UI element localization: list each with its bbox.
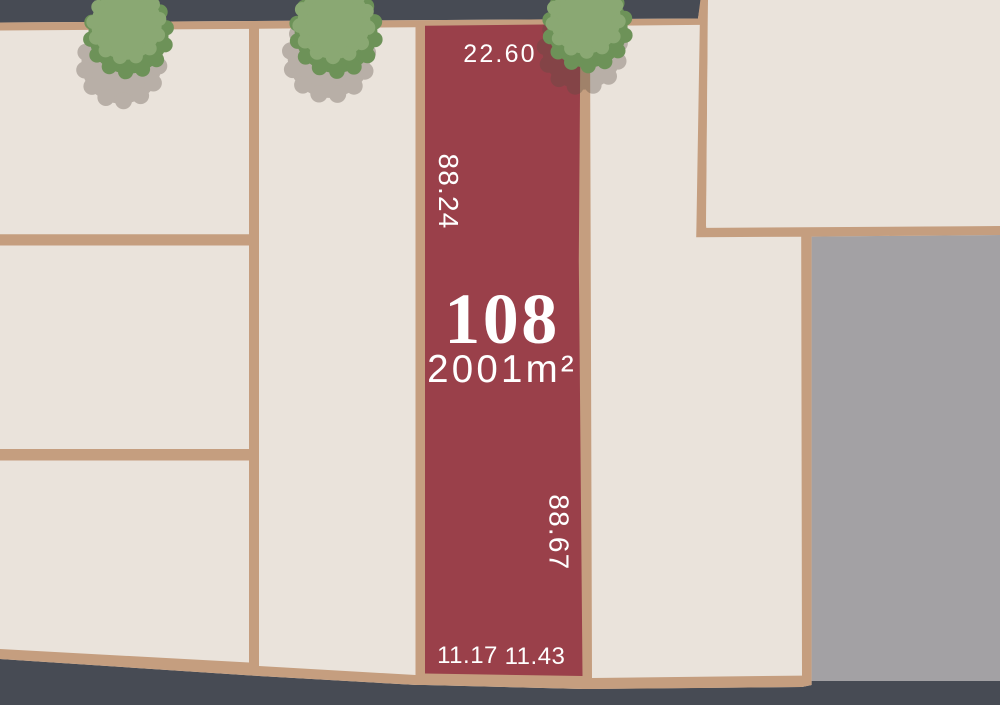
svg-text:2001m²: 2001m²	[427, 348, 577, 391]
svg-text:11.17: 11.17	[437, 642, 498, 669]
svg-text:11.43: 11.43	[505, 643, 566, 670]
svg-text:88.67: 88.67	[544, 494, 575, 570]
svg-text:108: 108	[444, 279, 560, 359]
svg-text:88.24: 88.24	[433, 154, 464, 230]
svg-text:22.60: 22.60	[463, 40, 537, 68]
